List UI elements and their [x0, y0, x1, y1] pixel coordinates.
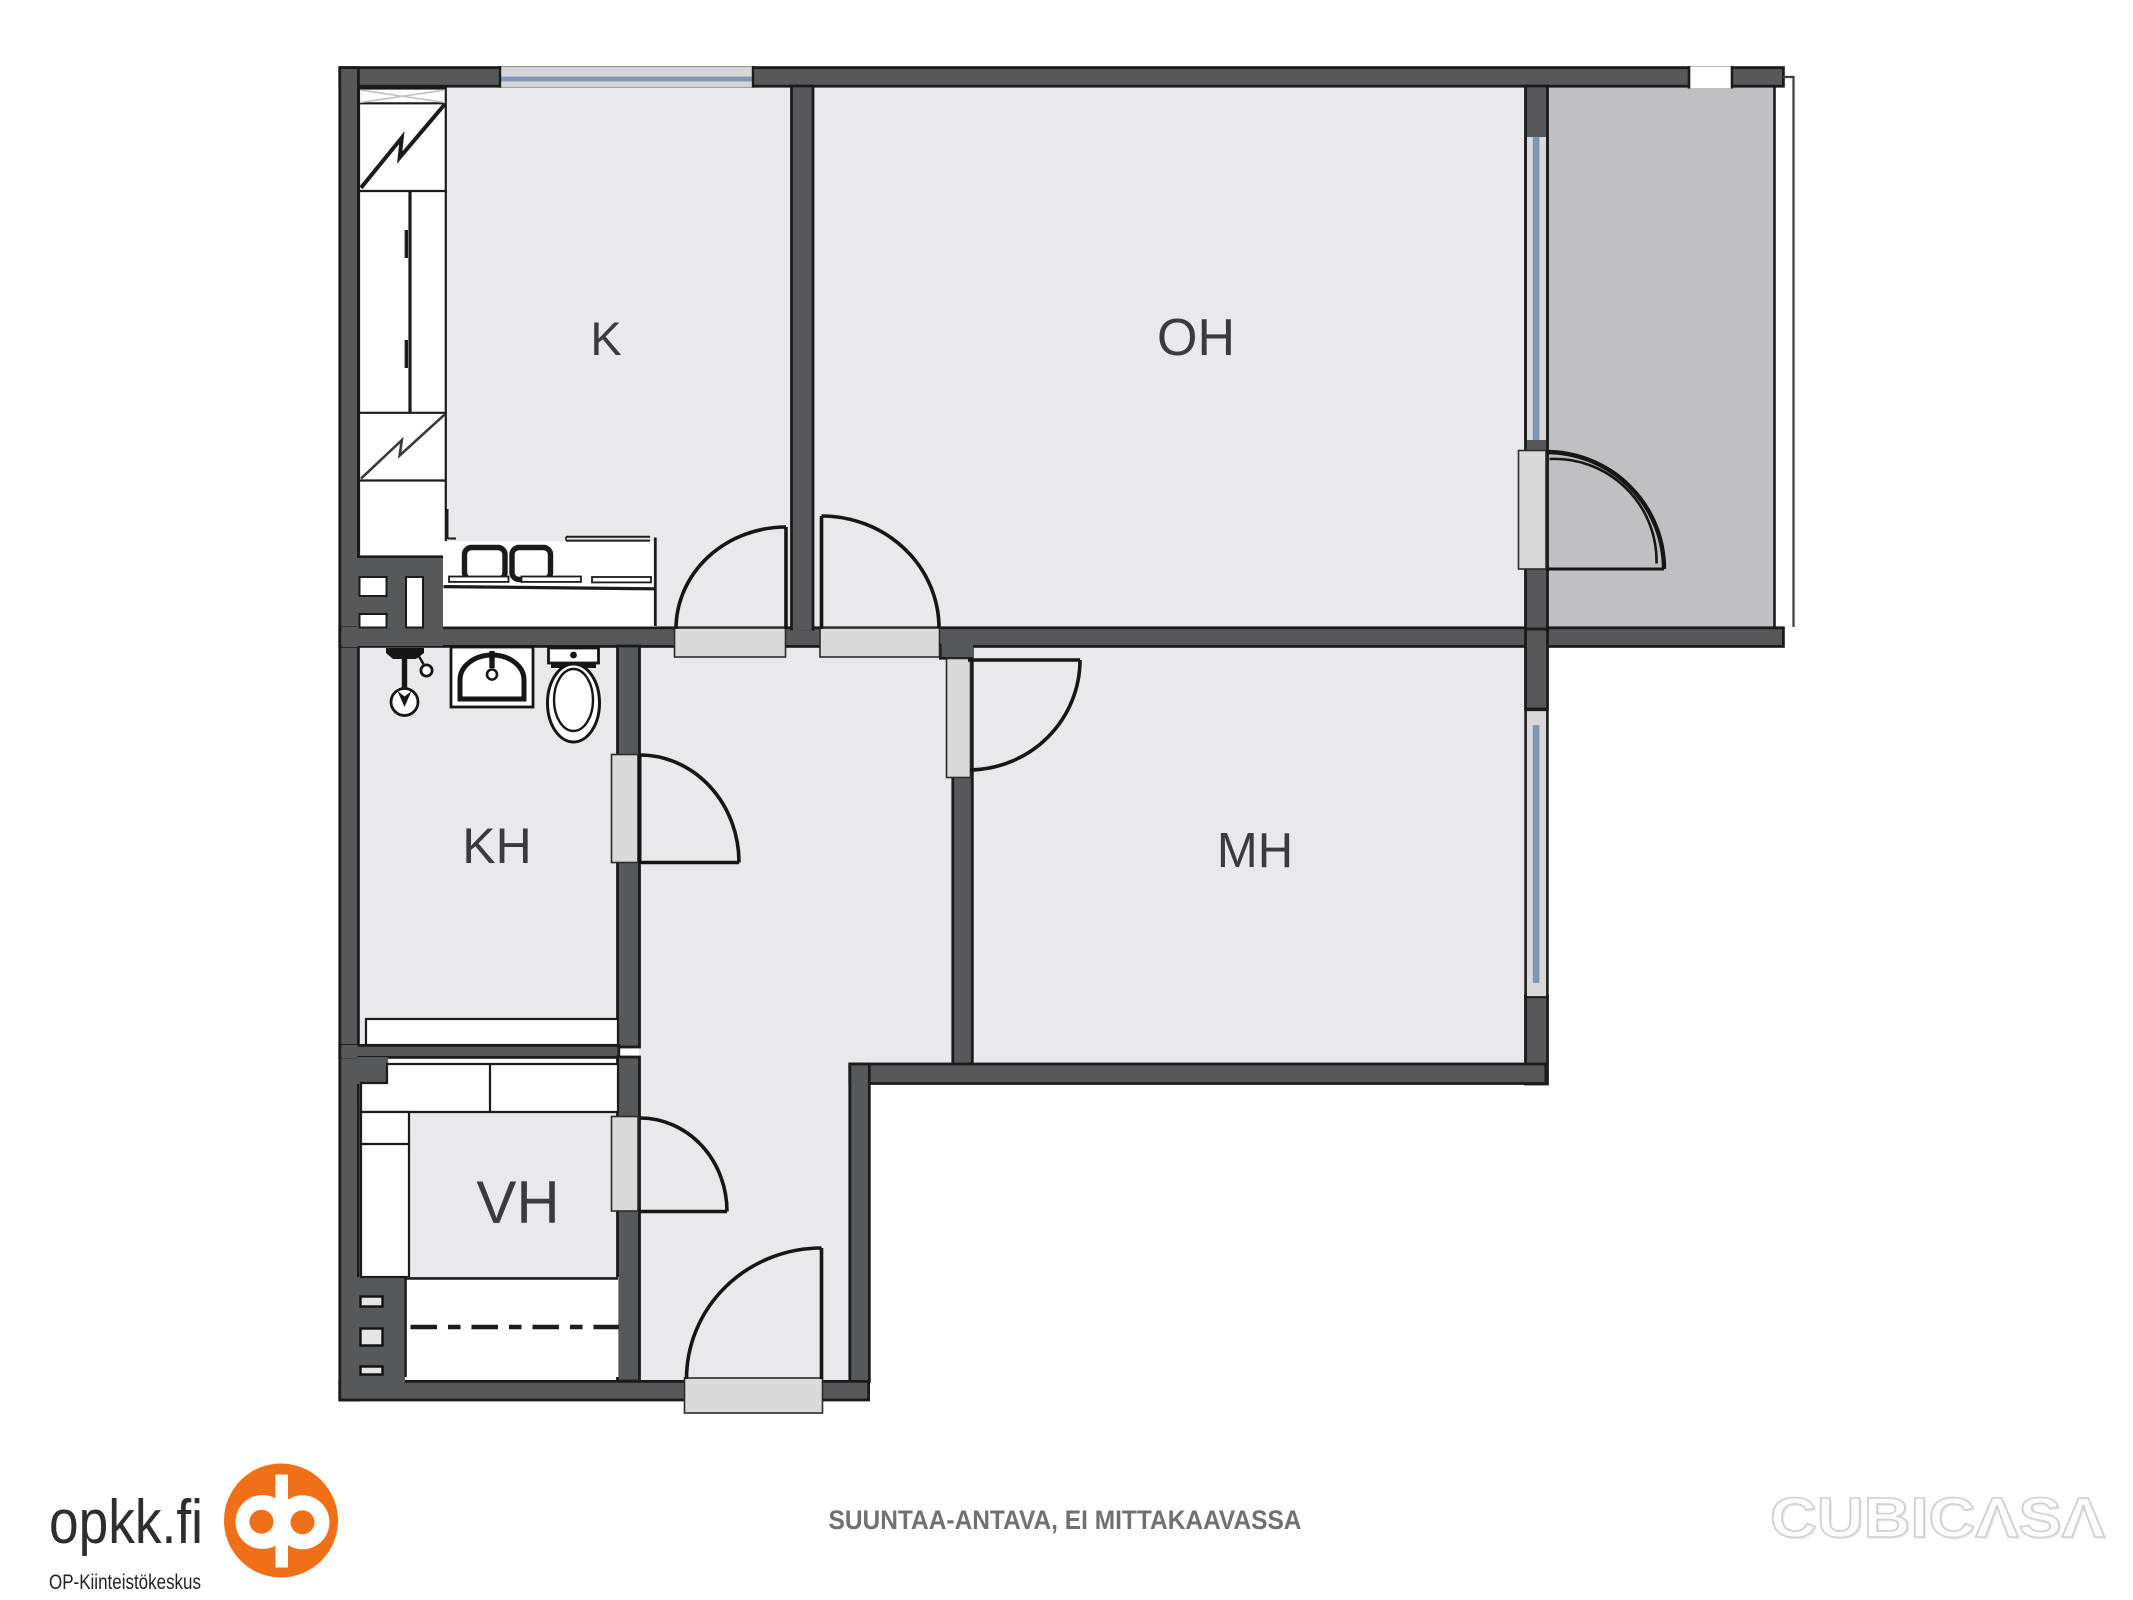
svg-text:OP-Kiinteistökeskus: OP-Kiinteistökeskus	[49, 1570, 201, 1594]
svg-text:CUBICΛSΛ: CUBICΛSΛ	[1770, 1486, 2105, 1550]
svg-text:OH: OH	[1157, 309, 1235, 367]
svg-text:VH: VH	[476, 1169, 559, 1236]
svg-text:SUUNTAA-ANTAVA, EI MITTAKAAVAS: SUUNTAA-ANTAVA, EI MITTAKAAVASSA	[829, 1505, 1302, 1535]
svg-text:opkk.fi: opkk.fi	[49, 1488, 203, 1557]
svg-text:MH: MH	[1217, 824, 1293, 878]
svg-text:K: K	[590, 312, 621, 365]
svg-text:KH: KH	[462, 818, 531, 874]
